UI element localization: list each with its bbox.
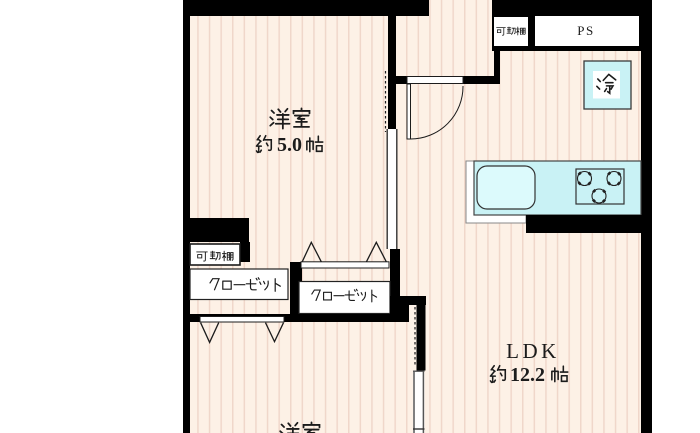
svg-text:5.0: 5.0 <box>277 134 302 156</box>
svg-text:LDK: LDK <box>506 339 560 363</box>
svg-text:12.2: 12.2 <box>510 364 545 386</box>
svg-text:PS: PS <box>577 23 594 38</box>
